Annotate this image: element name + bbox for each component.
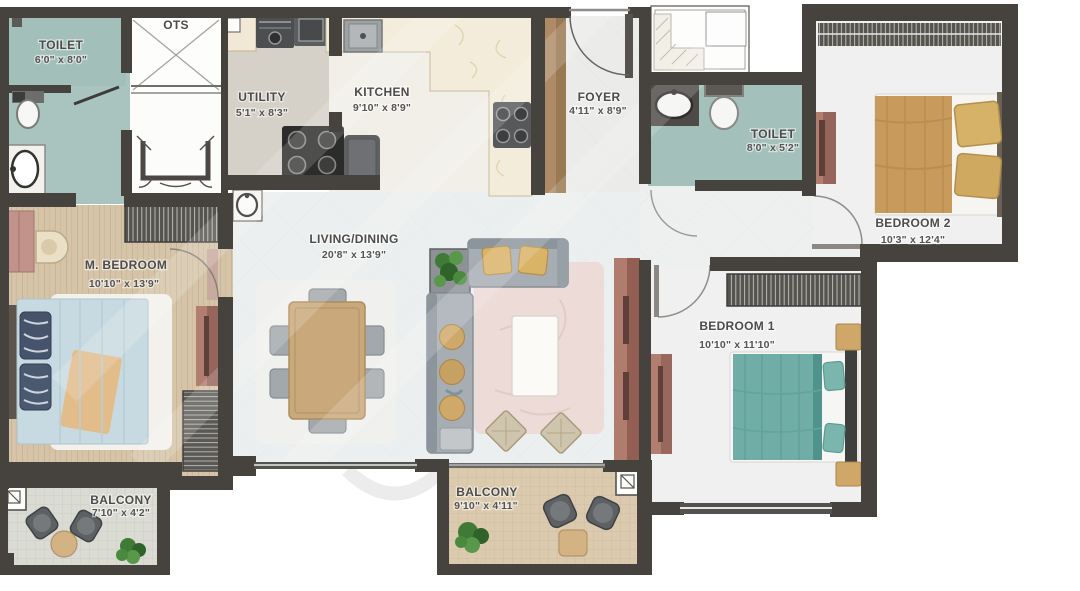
svg-text:8'0" x 5'2": 8'0" x 5'2" bbox=[747, 142, 799, 154]
svg-text:10'10" x 11'10": 10'10" x 11'10" bbox=[699, 339, 775, 351]
svg-text:BEDROOM 2: BEDROOM 2 bbox=[875, 216, 950, 230]
svg-text:BALCONY: BALCONY bbox=[456, 485, 517, 499]
svg-text:TOILET: TOILET bbox=[751, 127, 796, 141]
svg-text:6'0" x 8'0": 6'0" x 8'0" bbox=[35, 54, 87, 66]
svg-text:FOYER: FOYER bbox=[578, 90, 621, 104]
svg-text:KITCHEN: KITCHEN bbox=[354, 85, 409, 99]
svg-text:BALCONY: BALCONY bbox=[90, 493, 151, 507]
svg-text:5'1" x 8'3": 5'1" x 8'3" bbox=[236, 107, 288, 119]
svg-text:20'8" x 13'9": 20'8" x 13'9" bbox=[322, 249, 386, 261]
svg-text:7'10" x 4'2": 7'10" x 4'2" bbox=[92, 507, 150, 519]
svg-text:OTS: OTS bbox=[163, 18, 189, 32]
svg-text:LIVING/DINING: LIVING/DINING bbox=[309, 232, 398, 246]
svg-text:UTILITY: UTILITY bbox=[238, 90, 285, 104]
svg-text:TOILET: TOILET bbox=[39, 38, 84, 52]
svg-text:10'10" x 13'9": 10'10" x 13'9" bbox=[89, 278, 159, 290]
svg-text:10'3" x 12'4": 10'3" x 12'4" bbox=[881, 234, 945, 246]
svg-text:9'10" x 8'9": 9'10" x 8'9" bbox=[353, 102, 411, 114]
svg-text:9'10" x 4'11": 9'10" x 4'11" bbox=[454, 500, 518, 512]
svg-text:BEDROOM 1: BEDROOM 1 bbox=[699, 319, 774, 333]
svg-text:4'11" x 8'9": 4'11" x 8'9" bbox=[569, 105, 627, 117]
svg-text:M. BEDROOM: M. BEDROOM bbox=[85, 258, 167, 272]
